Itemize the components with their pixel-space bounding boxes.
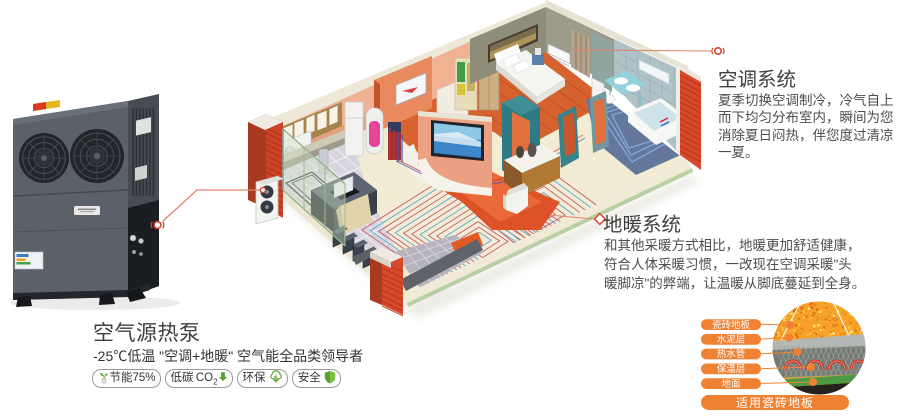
svg-text:适用瓷砖地板: 适用瓷砖地板 bbox=[736, 395, 814, 410]
svg-text:保温层: 保温层 bbox=[717, 363, 746, 375]
svg-text:瓷砖地板: 瓷砖地板 bbox=[712, 319, 751, 331]
svg-text:水泥层: 水泥层 bbox=[717, 334, 746, 346]
svg-text:热水管: 热水管 bbox=[717, 348, 746, 360]
svg-text:地面: 地面 bbox=[721, 378, 740, 390]
